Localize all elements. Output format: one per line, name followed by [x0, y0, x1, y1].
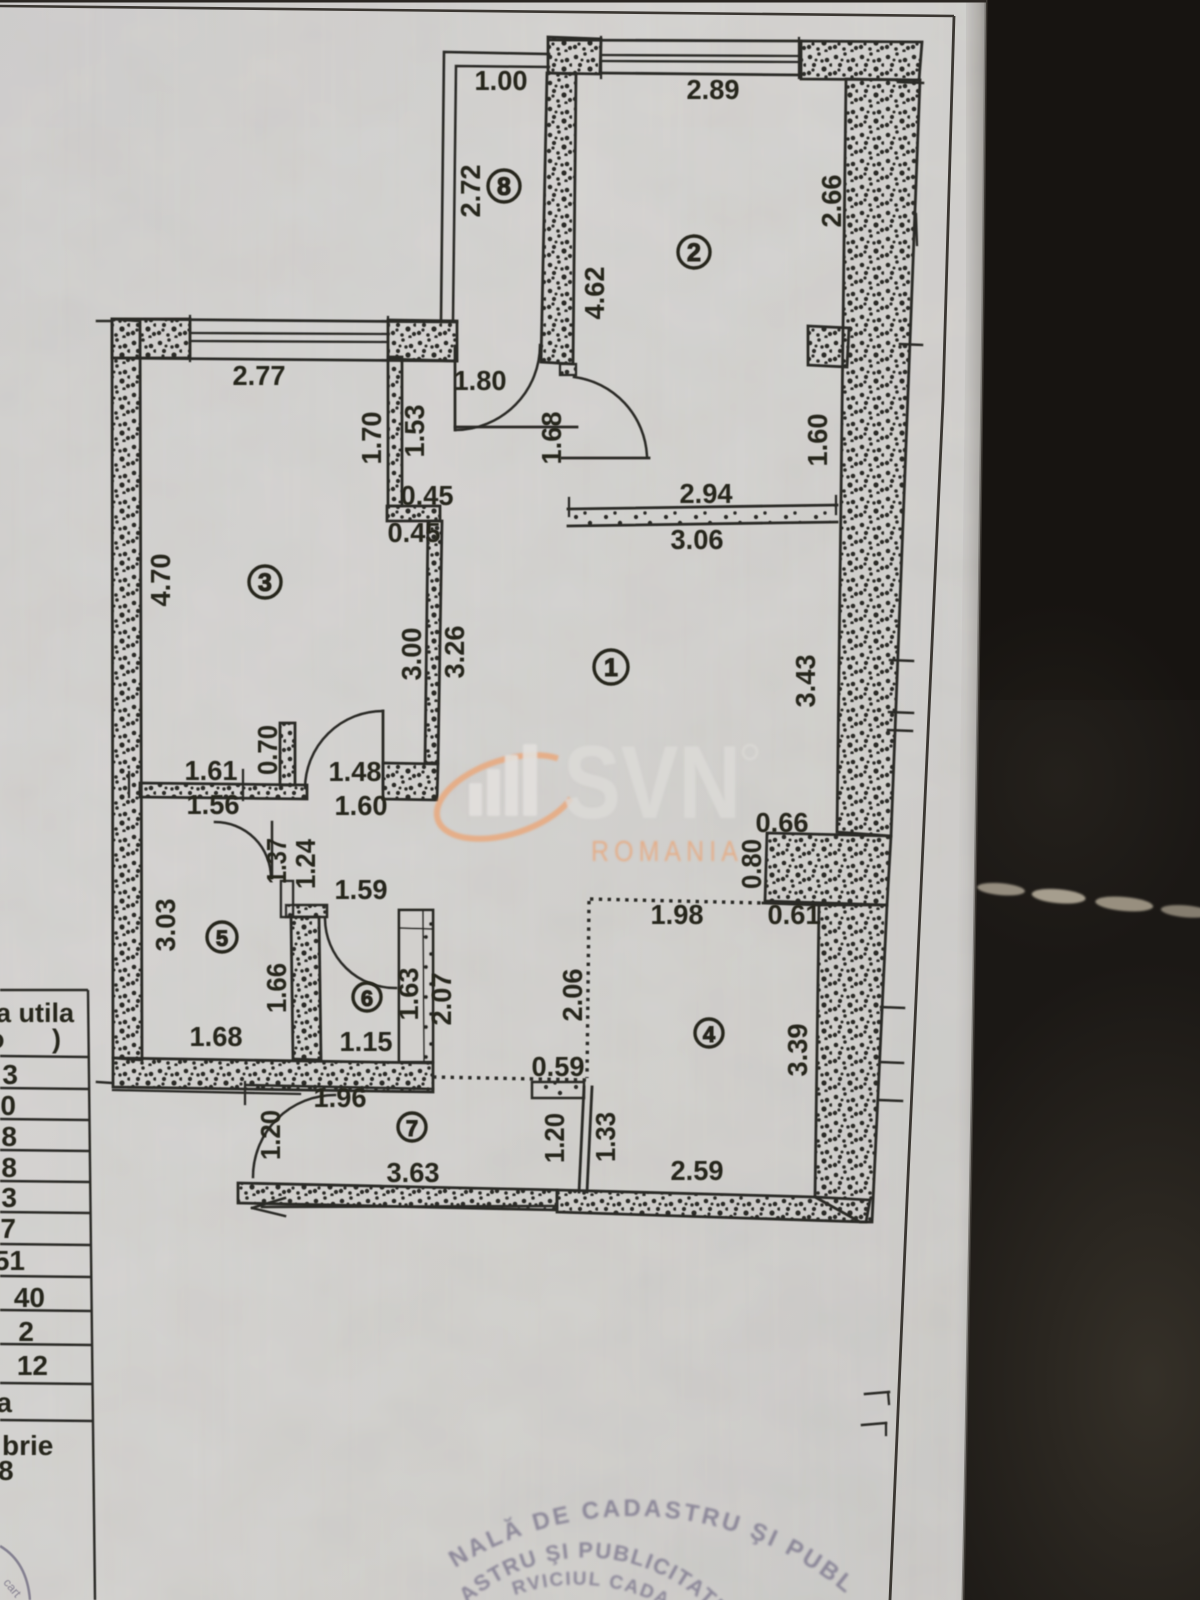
svg-text:3.39: 3.39: [782, 1024, 813, 1077]
svg-text:6: 6: [361, 986, 373, 1011]
svg-text:a: a: [0, 1387, 12, 1418]
svg-text:1.96: 1.96: [314, 1082, 367, 1113]
svg-text:4.62: 4.62: [579, 267, 610, 320]
svg-text:3.26: 3.26: [439, 626, 470, 679]
svg-text:8: 8: [0, 1455, 14, 1486]
svg-text:1.66: 1.66: [261, 963, 292, 1013]
svg-text:1.60: 1.60: [802, 414, 833, 467]
svg-text:2.94: 2.94: [680, 478, 733, 509]
svg-text:2.89: 2.89: [687, 74, 740, 105]
svg-text:1.00: 1.00: [475, 65, 528, 96]
svg-text:2.72: 2.72: [455, 165, 486, 218]
svg-text:1.60: 1.60: [335, 790, 388, 821]
svg-text:3.03: 3.03: [150, 899, 181, 952]
svg-text:0.66: 0.66: [756, 807, 809, 838]
svg-text:7: 7: [406, 1116, 418, 1141]
svg-text:7: 7: [0, 1213, 16, 1244]
svg-text:1.68: 1.68: [190, 1021, 243, 1052]
svg-text:2.66: 2.66: [816, 175, 847, 228]
svg-text:1.56: 1.56: [187, 789, 240, 820]
svg-text:1.98: 1.98: [651, 899, 704, 930]
svg-text:3: 3: [258, 569, 272, 597]
svg-text:1.20: 1.20: [255, 1110, 286, 1160]
svg-text:o: o: [0, 1024, 5, 1054]
svg-text:1.61: 1.61: [185, 755, 238, 786]
svg-text:1.20: 1.20: [539, 1113, 570, 1163]
svg-text:2.59: 2.59: [671, 1155, 724, 1186]
svg-text:40: 40: [14, 1282, 45, 1313]
svg-text:1.53: 1.53: [399, 405, 430, 458]
svg-text:1.33: 1.33: [590, 1112, 621, 1162]
svg-text:1.59: 1.59: [335, 874, 388, 905]
svg-text:3.43: 3.43: [790, 655, 821, 708]
svg-text:2.06: 2.06: [557, 969, 588, 1022]
svg-text:12: 12: [17, 1350, 48, 1381]
svg-text:2: 2: [687, 239, 701, 267]
svg-text:1.15: 1.15: [340, 1026, 393, 1057]
svg-text:2.07: 2.07: [426, 973, 457, 1026]
svg-text:8: 8: [497, 173, 511, 201]
svg-text:0: 0: [0, 1090, 16, 1121]
svg-text:1.24: 1.24: [290, 839, 321, 889]
svg-text:3: 3: [2, 1059, 18, 1090]
svg-text:8: 8: [1, 1121, 17, 1152]
svg-text:3.00: 3.00: [396, 628, 427, 681]
svg-text:1.80: 1.80: [454, 365, 507, 396]
svg-text:0.45: 0.45: [388, 517, 441, 548]
svg-text:1: 1: [604, 654, 618, 682]
svg-text:a utila: a utila: [0, 998, 75, 1028]
svg-text:4.70: 4.70: [145, 554, 176, 607]
svg-text:1.63: 1.63: [393, 968, 424, 1021]
svg-text:8: 8: [1, 1152, 17, 1183]
svg-text:SVN: SVN: [563, 725, 741, 841]
svg-text:0.70: 0.70: [252, 725, 283, 775]
svg-text:2: 2: [18, 1316, 34, 1347]
svg-text:3.06: 3.06: [671, 524, 724, 555]
svg-text:3: 3: [1, 1182, 17, 1213]
svg-text:0.59: 0.59: [532, 1051, 585, 1082]
svg-text:1.70: 1.70: [356, 412, 387, 465]
svg-text:4: 4: [703, 1022, 716, 1047]
svg-text:2.77: 2.77: [233, 360, 286, 391]
svg-text:51: 51: [0, 1245, 25, 1276]
svg-text:0.45: 0.45: [401, 480, 454, 511]
svg-text:0.61: 0.61: [768, 899, 821, 930]
svg-text:5: 5: [216, 926, 228, 951]
svg-text:3.63: 3.63: [387, 1157, 440, 1188]
svg-text:ROMANIA: ROMANIA: [591, 836, 743, 868]
svg-text:1.68: 1.68: [536, 412, 567, 465]
svg-text:): ): [52, 1024, 61, 1054]
svg-text:1.37: 1.37: [261, 838, 292, 884]
svg-text:1.48: 1.48: [329, 756, 382, 787]
